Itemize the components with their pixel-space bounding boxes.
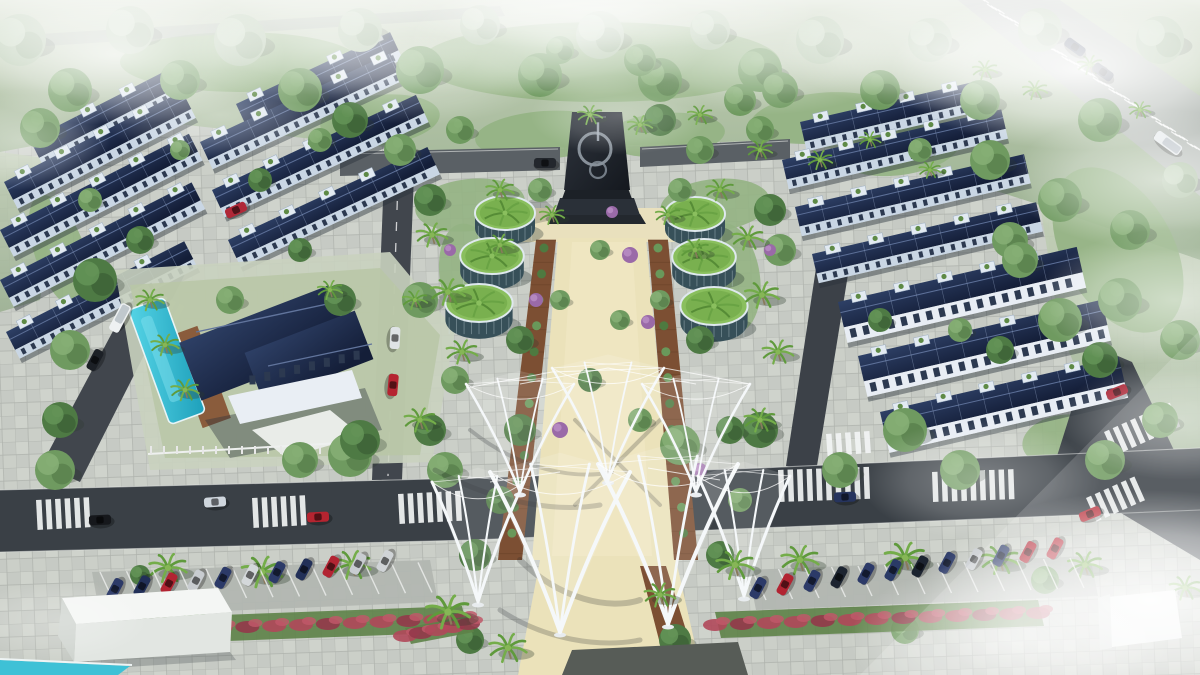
fog-patch — [300, 35, 540, 125]
flowering-tree — [606, 206, 618, 218]
flowering-tree — [552, 422, 568, 438]
flowering-tree — [641, 315, 655, 329]
flowering-tree — [622, 247, 638, 263]
flowering-tree — [444, 244, 456, 256]
flowering-tree — [529, 293, 543, 307]
scene-canvas — [0, 0, 1200, 675]
fog-patch — [530, 75, 710, 155]
car — [534, 158, 560, 172]
aerial-masterplan-render — [0, 0, 1200, 675]
villa-parcel — [115, 252, 455, 470]
